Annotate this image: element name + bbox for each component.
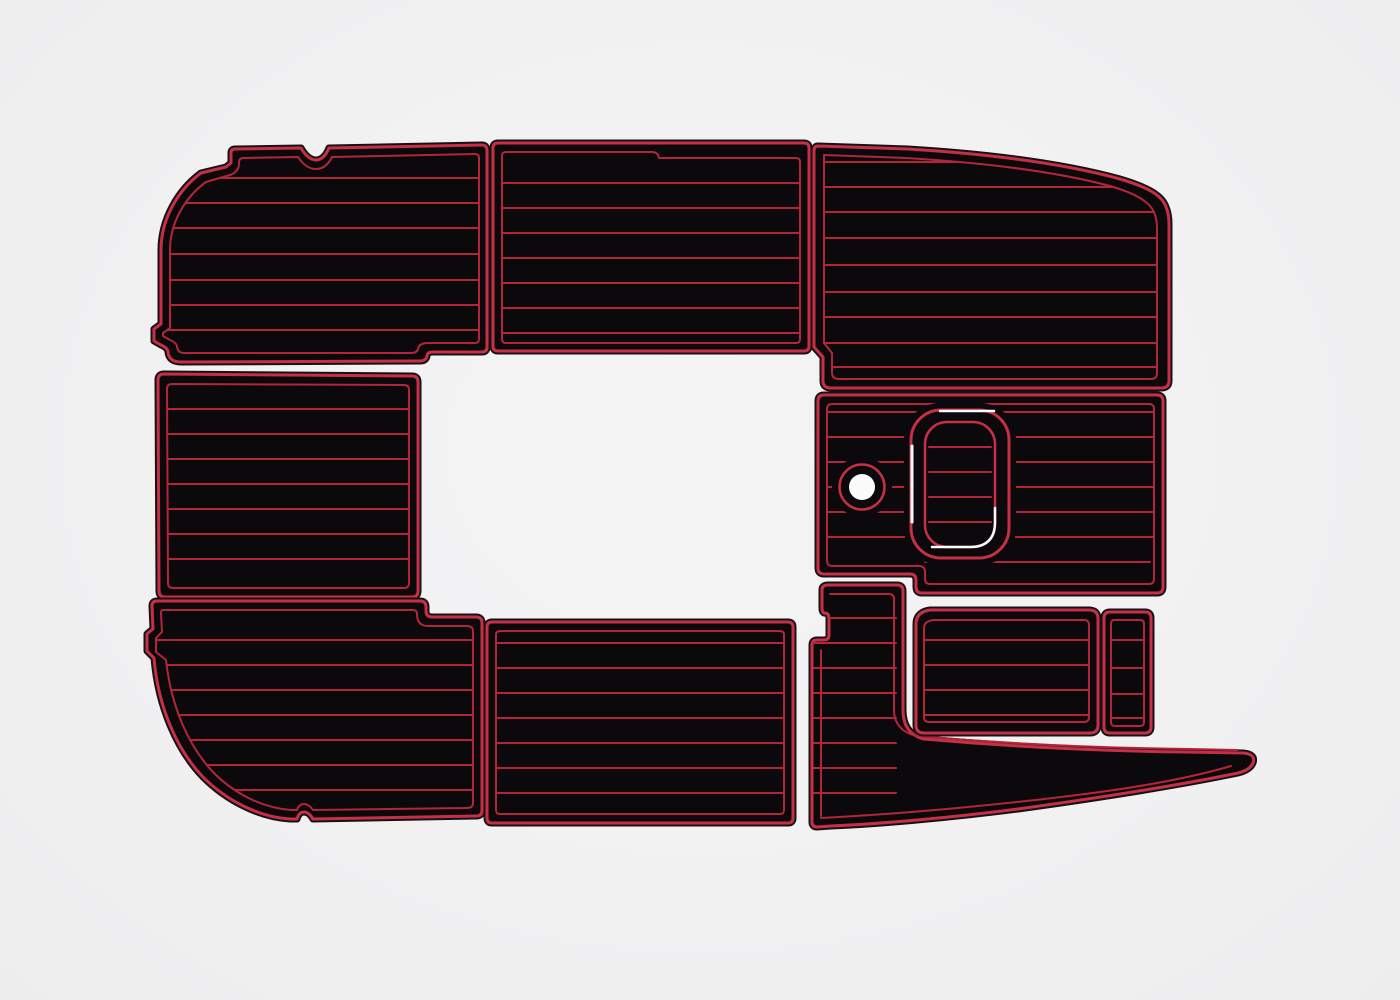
- boat-deck-pad-diagram: [0, 0, 1400, 1000]
- bow-starboard-pad: [814, 146, 1169, 388]
- hatch-pad: [925, 422, 995, 547]
- pad-body: [814, 146, 1169, 388]
- transom-box-pad: [916, 610, 1098, 733]
- pad-body: [158, 374, 418, 597]
- transom-step-pad: [1104, 612, 1151, 733]
- inspection-hole-part: [849, 474, 875, 500]
- deck-kit-svg: [0, 0, 1400, 1000]
- aft-center-pad: [487, 622, 793, 823]
- pad-body: [493, 143, 809, 351]
- pad-body: [147, 601, 482, 819]
- aft-port-pad: [147, 601, 482, 819]
- bow-port-pad: [154, 145, 487, 362]
- midship-port-pad: [158, 374, 418, 597]
- helm-deck-pad: [818, 395, 1163, 593]
- bow-center-pad: [493, 143, 809, 351]
